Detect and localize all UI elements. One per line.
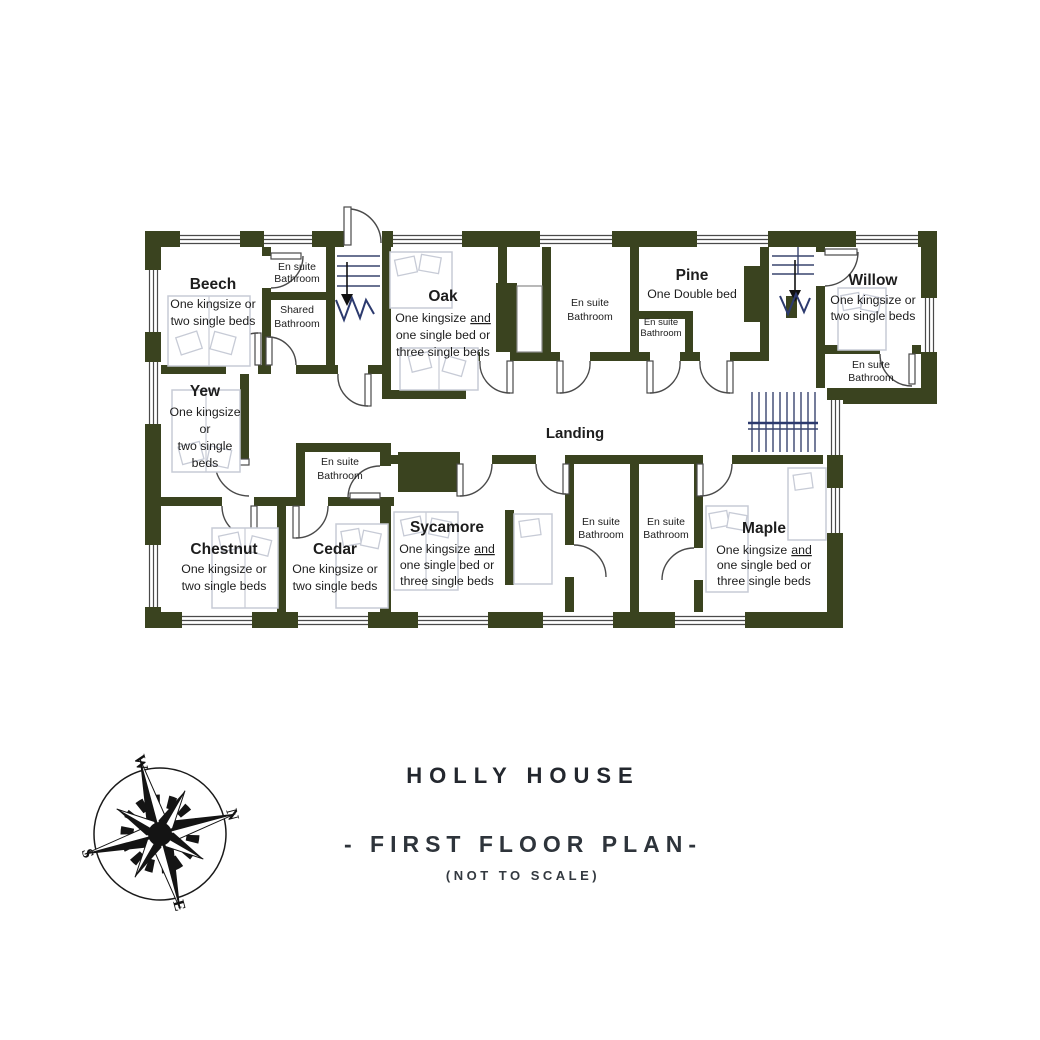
svg-text:Bathroom: Bathroom [848,372,894,384]
room-label-beech: Beech One kingsize or two single beds [170,276,255,328]
window [543,612,613,628]
window [145,270,161,332]
svg-text:three single beds: three single beds [396,345,490,359]
svg-text:Pine: Pine [676,267,709,284]
svg-text:Sycamore: Sycamore [410,519,484,536]
door [662,548,694,580]
door [266,337,296,365]
bed-icon [514,514,552,584]
svg-text:One Double bed: One Double bed [647,287,737,301]
svg-text:En suite: En suite [644,317,678,328]
window [180,231,240,247]
compass-south-label: S [78,847,97,860]
svg-text:One kingsize or: One kingsize or [830,293,915,307]
svg-text:two single beds: two single beds [171,314,256,328]
svg-text:One kingsize: One kingsize [169,405,240,419]
window [418,612,488,628]
svg-text:beds: beds [192,456,219,470]
window [675,612,745,628]
room-label-chestnut: Chestnut One kingsize or two single beds [181,541,266,593]
compass-rose-icon: N E S W [58,733,261,932]
staircase-top-right-icon [772,247,814,314]
svg-text:One kingsizeand: One kingsizeand [716,543,812,557]
svg-text:Cedar: Cedar [313,541,357,558]
svg-text:Bathroom: Bathroom [274,273,320,285]
svg-text:Yew: Yew [190,383,221,400]
svg-text:Bathroom: Bathroom [640,328,681,339]
exterior-door [344,207,382,247]
scale-note: (NOT TO SCALE) [446,868,600,883]
svg-text:One kingsizeand: One kingsizeand [395,311,491,325]
window [921,298,937,352]
svg-text:En suite: En suite [647,516,685,528]
svg-text:Bathroom: Bathroom [274,318,320,330]
bath-label-oak-ensuite: En suite Bathroom [567,297,613,323]
window [145,362,161,424]
window [827,488,843,533]
svg-text:Bathroom: Bathroom [643,529,689,541]
door [557,361,590,393]
svg-text:En suite: En suite [852,359,890,371]
bath-label-sycamore-ensuite: En suite Bathroom [317,456,363,482]
staircase-main-icon [748,392,818,452]
door [480,361,513,393]
door [647,361,680,393]
svg-text:one single bed or: one single bed or [717,558,811,572]
svg-text:Shared: Shared [280,304,314,316]
svg-text:one single bed or: one single bed or [400,558,494,572]
window [145,545,161,607]
door [338,374,371,406]
window [697,231,768,247]
bath-label-shared: Shared Bathroom [274,304,320,330]
svg-text:three single beds: three single beds [717,574,811,588]
door [536,464,569,494]
page-title: HOLLY HOUSE [406,763,639,788]
room-label-pine: Pine One Double bed [647,267,737,301]
window [393,231,462,247]
cupboard [517,286,542,352]
svg-text:or: or [200,422,211,436]
window [264,231,312,247]
svg-text:Willow: Willow [849,272,899,289]
svg-text:Bathroom: Bathroom [317,470,363,482]
chimney [398,452,460,492]
svg-text:En suite: En suite [321,456,359,468]
bath-label-pine-ensuite: En suite Bathroom [640,317,681,339]
svg-text:En suite: En suite [582,516,620,528]
svg-text:One kingsizeand: One kingsizeand [399,542,495,556]
staircase-top-left-icon [336,256,380,320]
compass-east-label: E [169,898,188,913]
door [700,361,733,393]
svg-text:One kingsize or: One kingsize or [170,297,255,311]
bath-label-ensuite-1: En suite Bathroom [578,516,624,541]
room-label-sycamore: Sycamore One kingsizeand one single bed … [399,519,495,588]
window [298,612,368,628]
svg-text:Beech: Beech [190,276,237,293]
chimney [496,283,517,352]
svg-text:Chestnut: Chestnut [190,541,257,558]
chimney [744,266,760,322]
window [827,400,843,455]
svg-text:three single beds: three single beds [400,574,494,588]
page-subtitle: - FIRST FLOOR PLAN- [344,831,702,857]
window [540,231,612,247]
svg-text:two single: two single [178,439,233,453]
bath-label-willow-ensuite: En suite Bathroom [848,359,894,384]
svg-text:En suite: En suite [278,261,316,273]
floor-plan-figure: Beech One kingsize or two single beds En… [0,0,1040,1040]
door [574,545,606,577]
door [457,464,492,496]
door [293,506,328,538]
window [856,231,918,247]
svg-text:One kingsize or: One kingsize or [292,562,377,576]
svg-text:One kingsize or: One kingsize or [181,562,266,576]
bed-icon [788,468,826,540]
svg-text:En suite: En suite [571,297,609,309]
svg-text:Maple: Maple [742,520,786,537]
door [697,464,732,496]
svg-text:one single bed or: one single bed or [396,328,490,342]
footer: HOLLY HOUSE - FIRST FLOOR PLAN- (NOT TO … [344,763,702,883]
svg-text:Bathroom: Bathroom [567,311,613,323]
landing-label: Landing [546,425,604,442]
bath-label-beech-ensuite: En suite Bathroom [274,261,320,285]
window [182,612,252,628]
compass-north-label: N [222,807,242,823]
svg-text:two single beds: two single beds [182,579,267,593]
svg-text:Oak: Oak [428,288,458,305]
page: Beech One kingsize or two single beds En… [0,0,1040,1040]
svg-text:two single beds: two single beds [831,309,916,323]
svg-text:Bathroom: Bathroom [578,529,624,541]
svg-text:two single beds: two single beds [293,579,378,593]
bath-label-ensuite-2: En suite Bathroom [643,516,689,541]
